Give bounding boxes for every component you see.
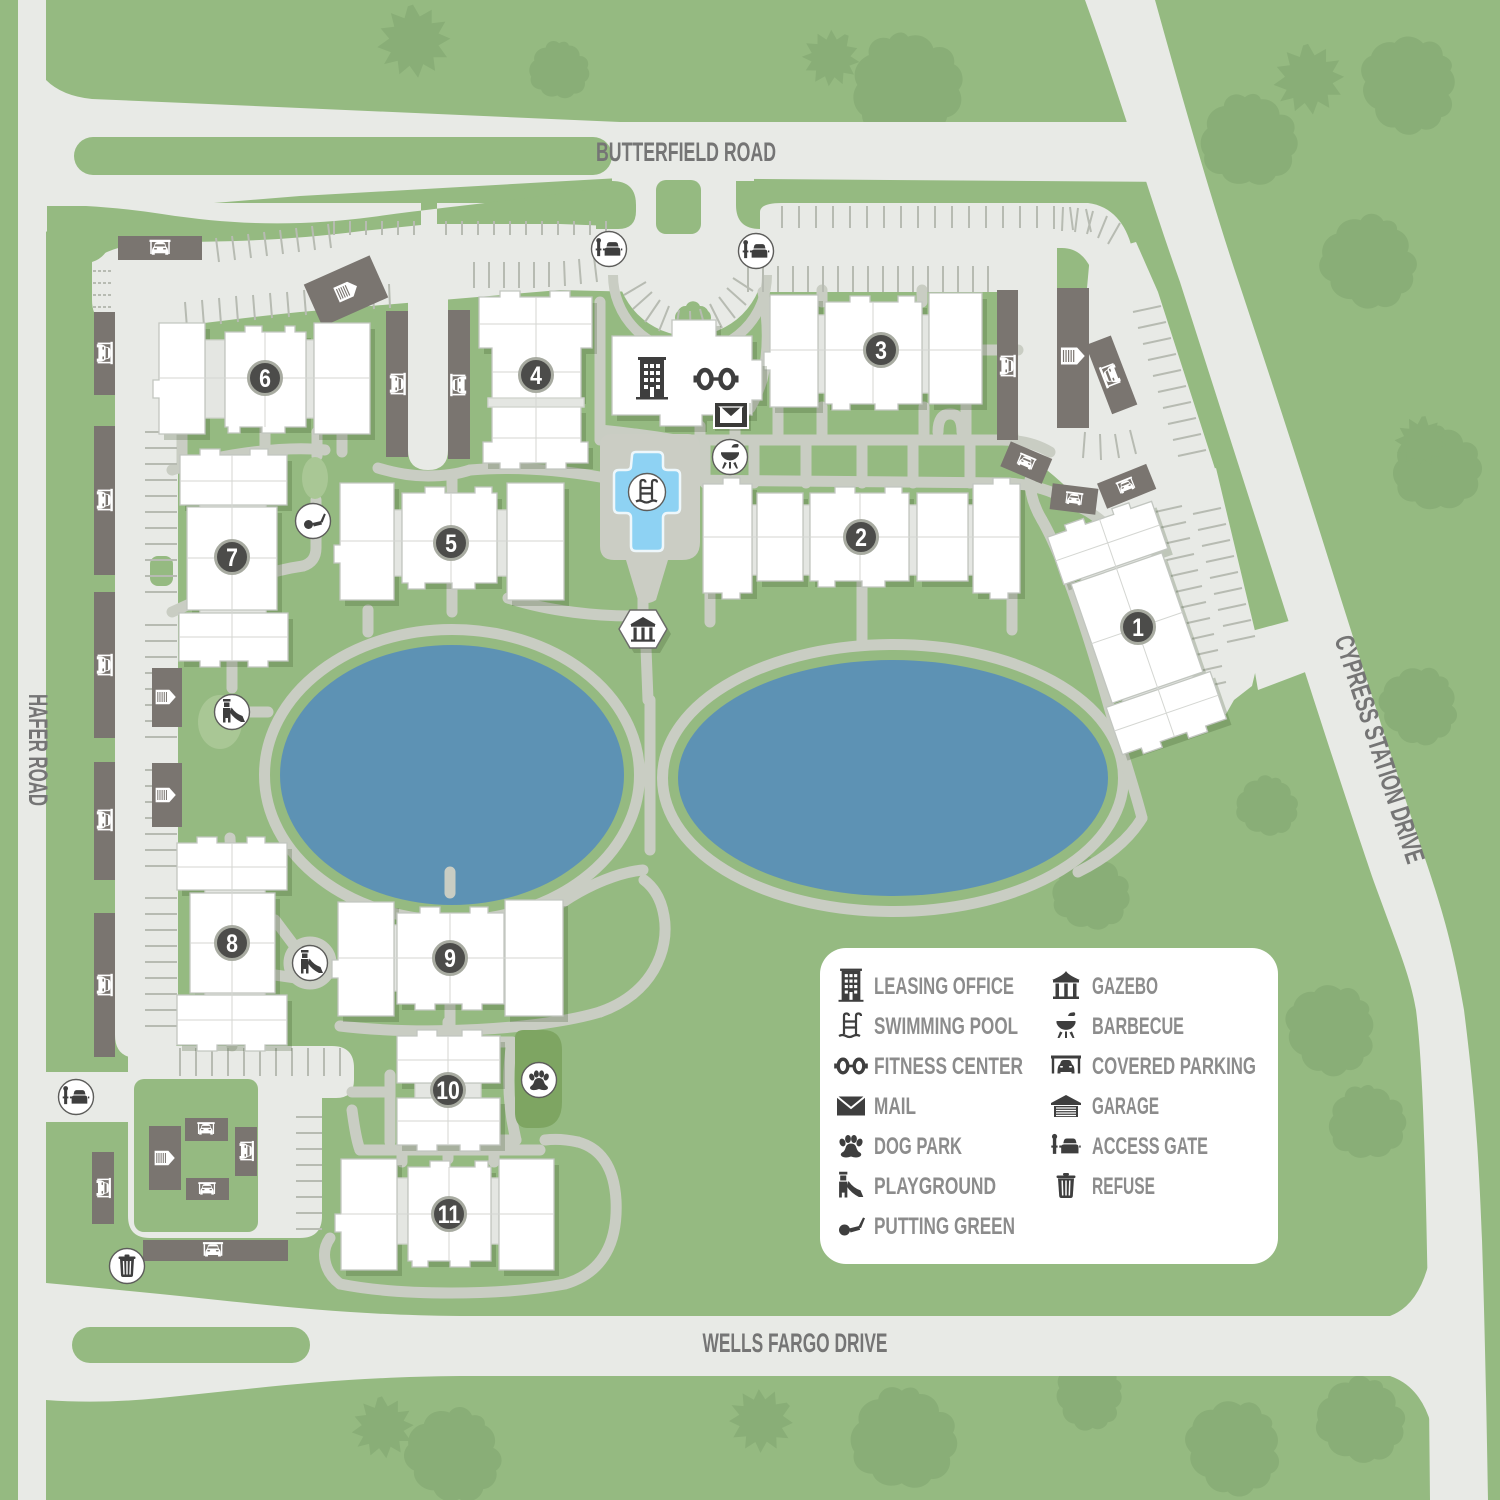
svg-text:SWIMMING POOL: SWIMMING POOL bbox=[874, 1013, 1018, 1040]
svg-text:PUTTING GREEN: PUTTING GREEN bbox=[874, 1213, 1015, 1240]
svg-text:PLAYGROUND: PLAYGROUND bbox=[874, 1173, 996, 1200]
svg-text:7: 7 bbox=[226, 543, 238, 571]
svg-text:ACCESS GATE: ACCESS GATE bbox=[1092, 1133, 1208, 1160]
svg-text:BUTTERFIELD ROAD: BUTTERFIELD ROAD bbox=[596, 137, 776, 167]
svg-text:GAZEBO: GAZEBO bbox=[1092, 973, 1158, 1000]
svg-text:1: 1 bbox=[1132, 613, 1144, 641]
svg-text:MAIL: MAIL bbox=[874, 1093, 916, 1120]
svg-text:WELLS FARGO DRIVE: WELLS FARGO DRIVE bbox=[703, 1328, 888, 1358]
svg-text:FITNESS CENTER: FITNESS CENTER bbox=[874, 1053, 1023, 1080]
svg-text:COVERED PARKING: COVERED PARKING bbox=[1092, 1053, 1256, 1080]
svg-text:9: 9 bbox=[444, 944, 456, 972]
svg-text:10: 10 bbox=[436, 1076, 460, 1104]
svg-text:GARAGE: GARAGE bbox=[1092, 1093, 1159, 1120]
svg-text:5: 5 bbox=[445, 529, 457, 557]
svg-text:4: 4 bbox=[530, 361, 542, 389]
svg-text:8: 8 bbox=[226, 929, 238, 957]
svg-text:11: 11 bbox=[438, 1200, 461, 1228]
svg-text:LEASING OFFICE: LEASING OFFICE bbox=[874, 973, 1014, 1000]
svg-text:3: 3 bbox=[875, 336, 887, 364]
svg-text:REFUSE: REFUSE bbox=[1092, 1173, 1155, 1200]
svg-text:6: 6 bbox=[259, 364, 271, 392]
svg-text:HAFER ROAD: HAFER ROAD bbox=[23, 694, 53, 806]
svg-text:DOG PARK: DOG PARK bbox=[874, 1133, 962, 1160]
svg-text:BARBECUE: BARBECUE bbox=[1092, 1013, 1184, 1040]
svg-text:2: 2 bbox=[855, 523, 867, 551]
